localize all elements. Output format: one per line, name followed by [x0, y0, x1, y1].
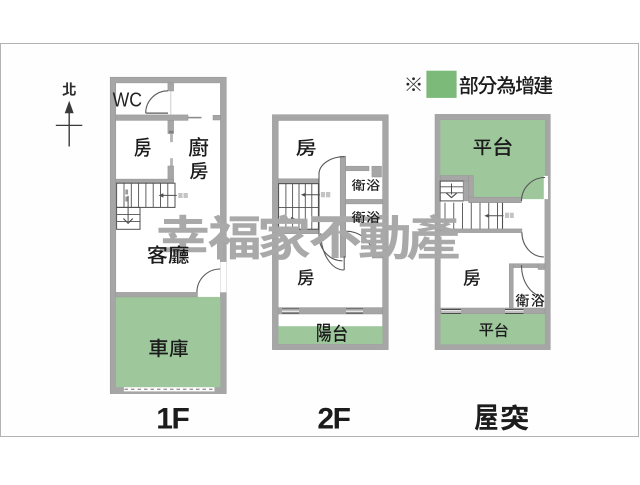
- svg-text:2F: 2F: [317, 403, 350, 436]
- svg-text:1F: 1F: [156, 403, 189, 436]
- svg-text:WC: WC: [113, 89, 143, 112]
